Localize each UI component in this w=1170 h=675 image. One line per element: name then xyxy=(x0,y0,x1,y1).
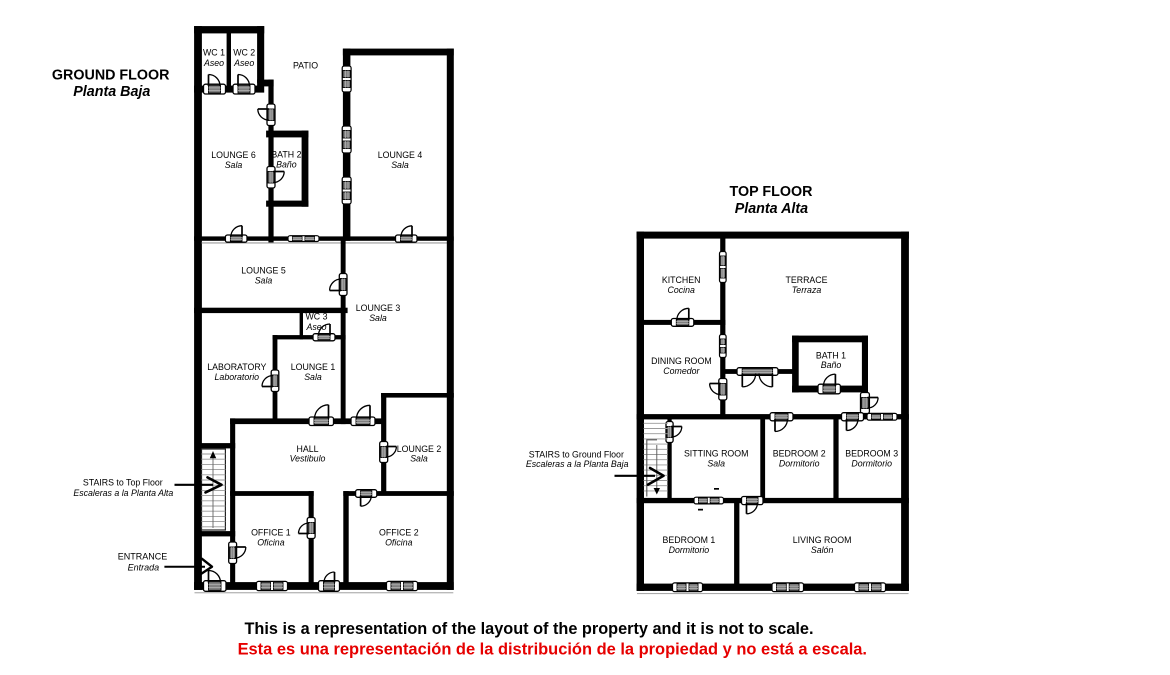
svg-text:Sala: Sala xyxy=(391,160,409,170)
svg-text:Entrada: Entrada xyxy=(128,563,160,573)
svg-text:Escaleras a la Planta Alta: Escaleras a la Planta Alta xyxy=(73,488,173,498)
svg-text:LOUNGE 5: LOUNGE 5 xyxy=(241,266,286,276)
svg-text:HALL: HALL xyxy=(296,444,318,454)
svg-text:Comedor: Comedor xyxy=(663,366,700,376)
svg-text:LOUNGE 3: LOUNGE 3 xyxy=(356,303,401,313)
svg-text:LOUNGE 4: LOUNGE 4 xyxy=(378,150,423,160)
svg-text:DINING ROOM: DINING ROOM xyxy=(651,356,712,366)
svg-text:Aseo: Aseo xyxy=(305,322,326,332)
svg-text:LOUNGE 6: LOUNGE 6 xyxy=(211,150,256,160)
svg-text:STAIRS to Top Floor: STAIRS to Top Floor xyxy=(83,477,163,487)
svg-text:Laboratorio: Laboratorio xyxy=(215,372,260,382)
svg-text:Esta es una representación de: Esta es una representación de la distrib… xyxy=(238,640,867,658)
svg-text:Sala: Sala xyxy=(225,160,243,170)
svg-text:LABORATORY: LABORATORY xyxy=(207,362,266,372)
svg-text:Cocina: Cocina xyxy=(668,285,695,295)
svg-text:Baño: Baño xyxy=(821,360,842,370)
svg-text:This is a representation of th: This is a representation of the layout o… xyxy=(244,620,813,638)
svg-text:BATH 2: BATH 2 xyxy=(271,150,301,160)
svg-text:STAIRS to Ground Floor: STAIRS to Ground Floor xyxy=(529,450,624,460)
svg-text:LIVING ROOM: LIVING ROOM xyxy=(793,535,852,545)
svg-text:Aseo: Aseo xyxy=(203,58,224,68)
svg-text:Aseo: Aseo xyxy=(233,58,254,68)
svg-text:LOUNGE 1: LOUNGE 1 xyxy=(291,362,336,372)
svg-text:SITTING ROOM: SITTING ROOM xyxy=(684,449,749,459)
svg-text:Sala: Sala xyxy=(369,313,387,323)
svg-text:Dormitorio: Dormitorio xyxy=(779,458,820,468)
svg-text:BEDROOM 2: BEDROOM 2 xyxy=(773,449,826,459)
svg-text:Planta Baja: Planta Baja xyxy=(73,84,150,100)
svg-text:WC 3: WC 3 xyxy=(306,311,328,321)
svg-text:Sala: Sala xyxy=(304,372,322,382)
svg-text:TERRACE: TERRACE xyxy=(785,275,827,285)
svg-text:WC 1: WC 1 xyxy=(203,48,225,58)
svg-text:ENTRANCE: ENTRANCE xyxy=(118,551,168,561)
svg-text:Dormitorio: Dormitorio xyxy=(669,545,710,555)
svg-text:Sala: Sala xyxy=(410,454,428,464)
svg-text:TOP FLOOR: TOP FLOOR xyxy=(730,184,814,200)
svg-text:BEDROOM 3: BEDROOM 3 xyxy=(845,449,898,459)
svg-text:PATIO: PATIO xyxy=(293,61,318,71)
svg-text:OFFICE 1: OFFICE 1 xyxy=(251,528,291,538)
svg-text:Sala: Sala xyxy=(707,458,725,468)
svg-text:Oficina: Oficina xyxy=(385,537,412,547)
svg-text:Planta Alta: Planta Alta xyxy=(735,201,808,217)
svg-text:Terraza: Terraza xyxy=(792,285,822,295)
svg-text:KITCHEN: KITCHEN xyxy=(662,275,701,285)
svg-text:Baño: Baño xyxy=(276,160,297,170)
svg-text:Salón: Salón xyxy=(811,545,834,555)
svg-text:Dormitorio: Dormitorio xyxy=(851,458,892,468)
svg-text:Oficina: Oficina xyxy=(257,537,284,547)
svg-text:Sala: Sala xyxy=(255,275,273,285)
svg-text:OFFICE 2: OFFICE 2 xyxy=(379,528,419,538)
svg-text:BEDROOM 1: BEDROOM 1 xyxy=(663,535,716,545)
svg-text:GROUND FLOOR: GROUND FLOOR xyxy=(52,67,170,83)
svg-text:BATH 1: BATH 1 xyxy=(816,350,846,360)
svg-text:Escaleras a la Planta Baja: Escaleras a la Planta Baja xyxy=(526,459,629,469)
svg-text:LOUNGE 2: LOUNGE 2 xyxy=(397,444,442,454)
svg-text:WC 2: WC 2 xyxy=(233,48,255,58)
svg-text:Vestibulo: Vestibulo xyxy=(290,454,326,464)
